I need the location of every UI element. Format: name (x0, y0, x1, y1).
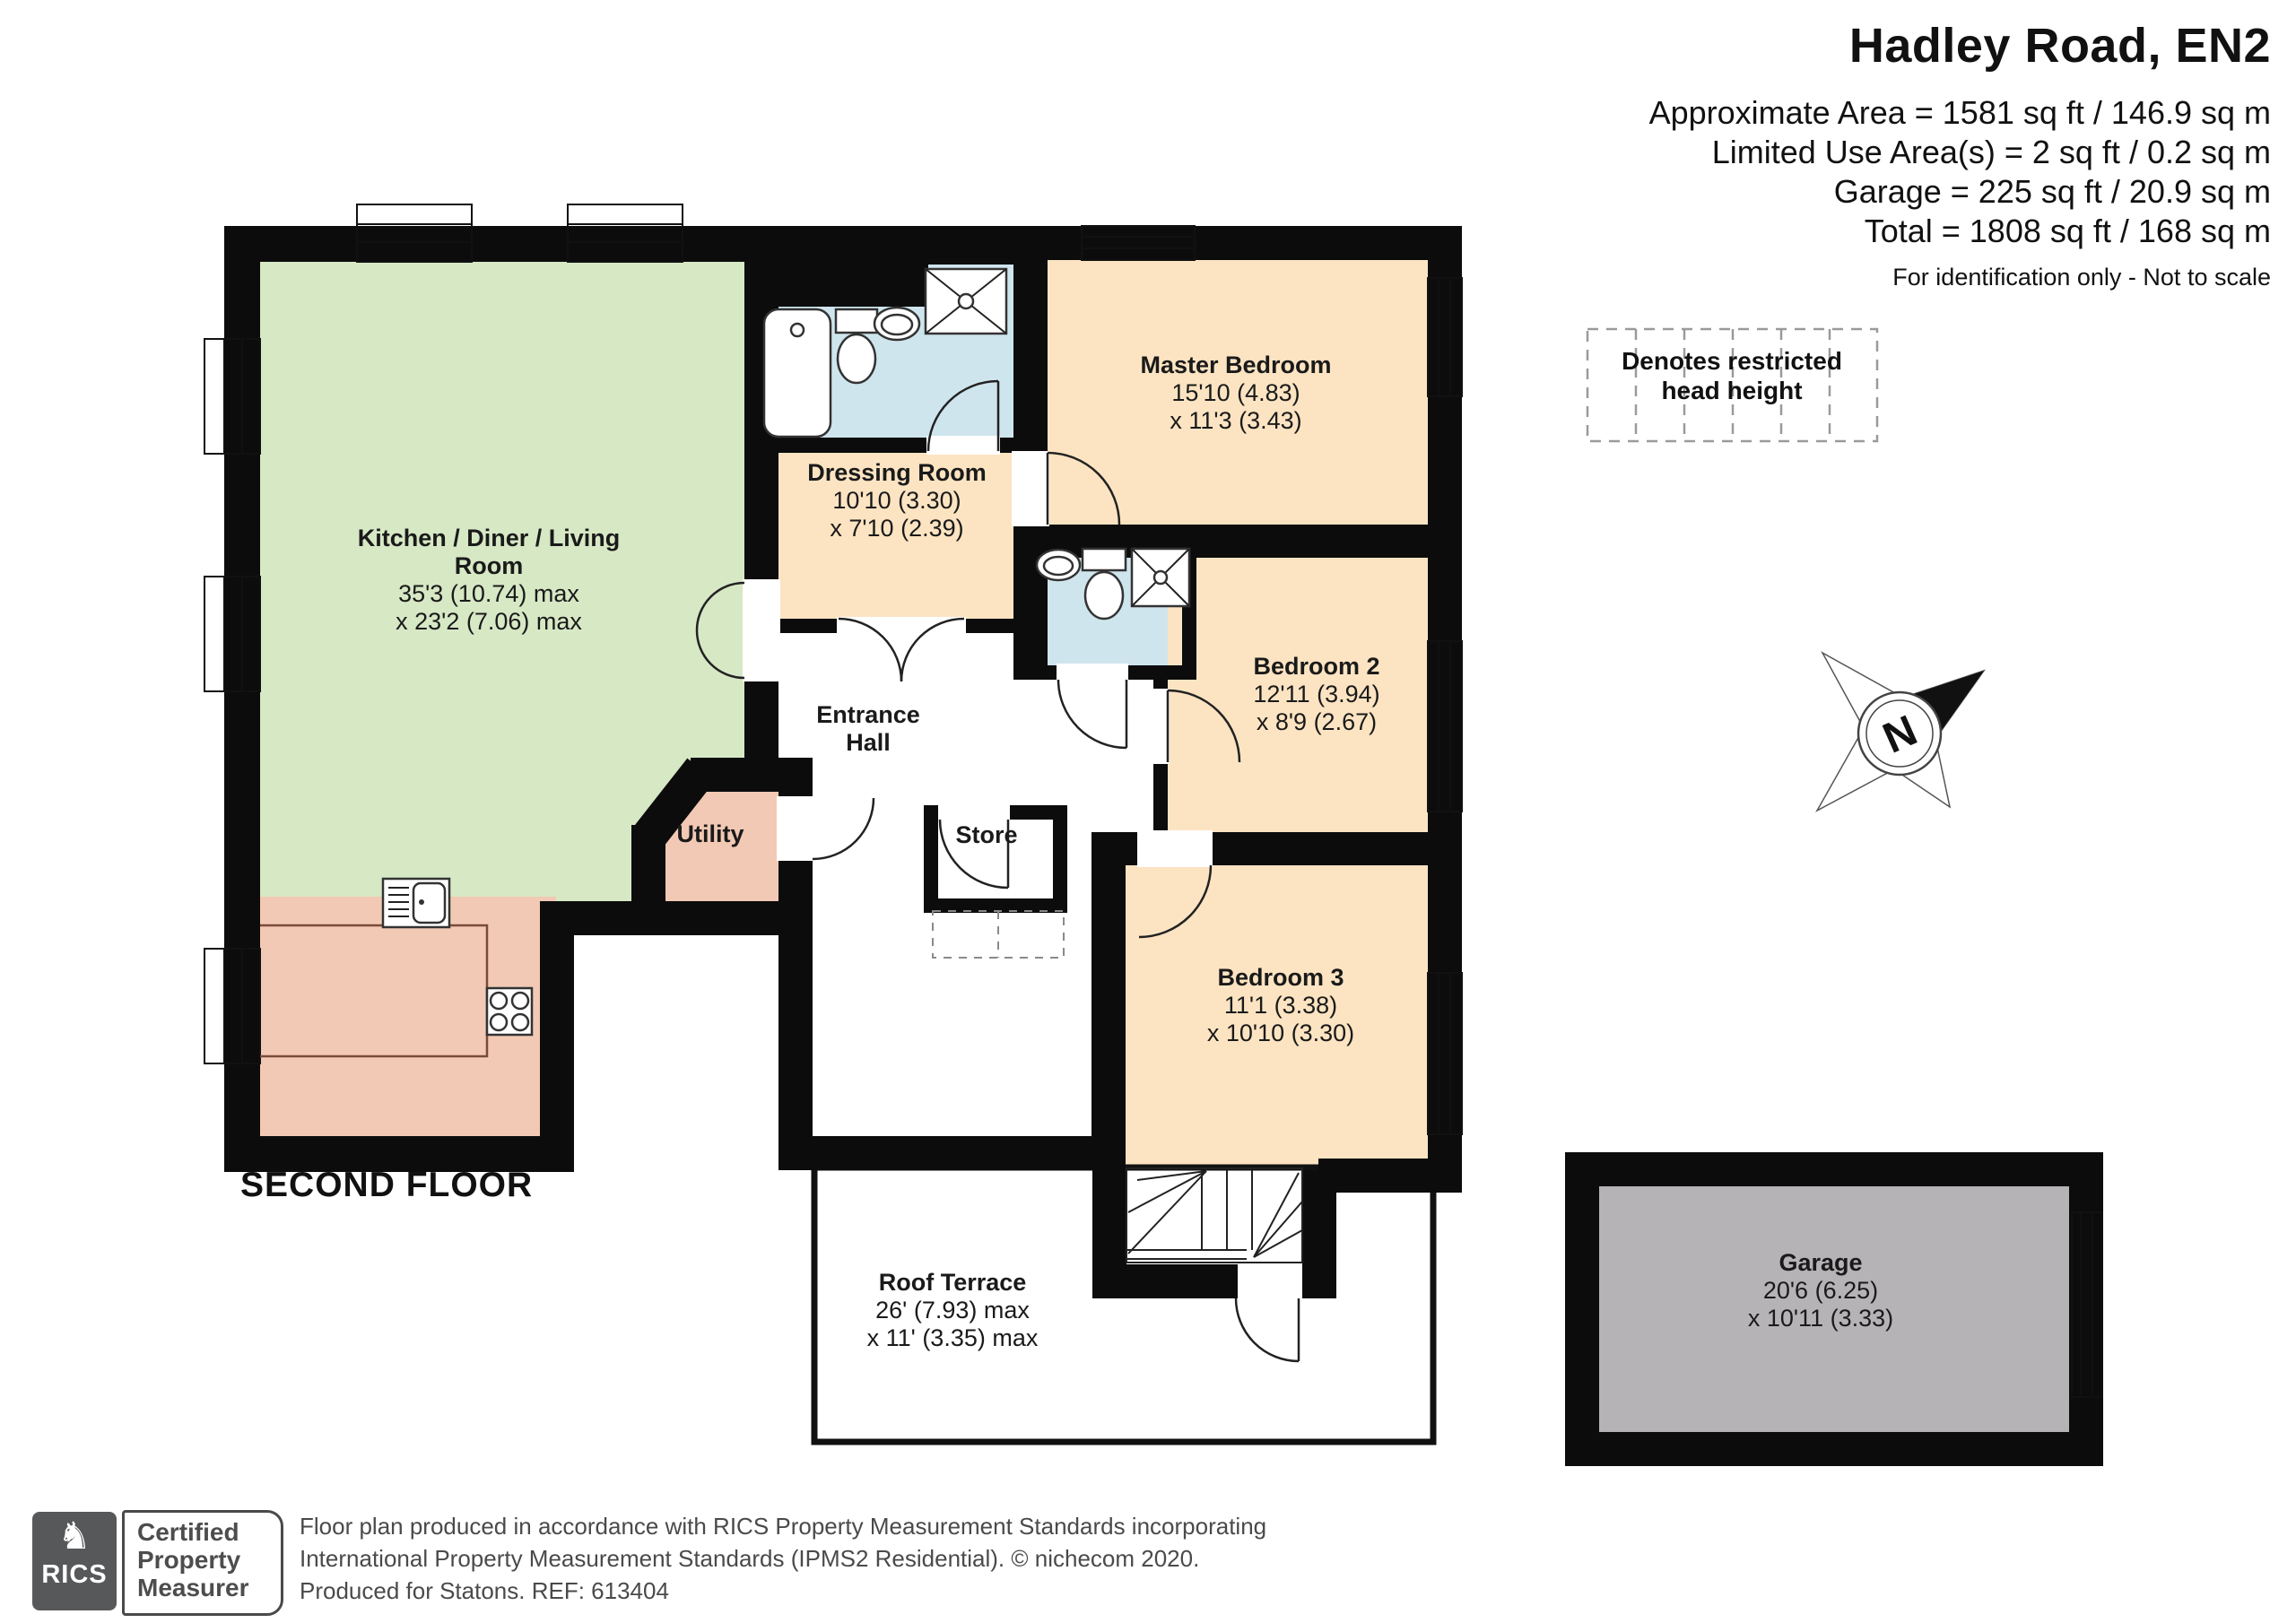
terrace-dim1: 26' (7.93) max (867, 1297, 1039, 1324)
total-area-line: Total = 1808 sq ft / 168 sq m (1649, 212, 2271, 251)
header: Hadley Road, EN2 Approximate Area = 1581… (1649, 18, 2271, 291)
footer-line-1: Floor plan produced in accordance with R… (300, 1510, 1266, 1542)
bedroom3-name: Bedroom 3 (1207, 964, 1354, 992)
bedroom3-label: Bedroom 3 11'1 (3.38) x 10'10 (3.30) (1207, 964, 1354, 1047)
garage-label: Garage 20'6 (6.25) x 10'11 (3.33) (1748, 1249, 1893, 1332)
footer-line-2: International Property Measurement Stand… (300, 1542, 1266, 1575)
hob-icon (487, 988, 532, 1035)
bedroom2-label: Bedroom 2 12'11 (3.94) x 8'9 (2.67) (1253, 653, 1379, 736)
utility-label: Utility (676, 820, 744, 848)
bedroom2-dim1: 12'11 (3.94) (1253, 681, 1379, 708)
kitchen-dim1: 35'3 (10.74) max (354, 580, 623, 608)
ensuite-sink-icon (1037, 550, 1080, 580)
store-name: Store (955, 821, 1017, 849)
master-dim2: x 11'3 (3.43) (1140, 407, 1331, 435)
entrance-name: Entrance Hall (801, 701, 935, 757)
page-title: Hadley Road, EN2 (1649, 18, 2271, 74)
store-label: Store (955, 821, 1017, 849)
footer-line-3: Produced for Statons. REF: 613404 (300, 1575, 1266, 1607)
restricted-area-store (933, 911, 1064, 958)
footer-disclaimer: Floor plan produced in accordance with R… (300, 1510, 1266, 1607)
garage-area-line: Garage = 225 sq ft / 20.9 sq m (1649, 172, 2271, 212)
ensuite-shower-icon (1132, 549, 1189, 606)
kitchen-dim2: x 23'2 (7.06) max (354, 608, 623, 636)
limited-use-line: Limited Use Area(s) = 2 sq ft / 0.2 sq m (1649, 133, 2271, 172)
master-bedroom-label: Master Bedroom 15'10 (4.83) x 11'3 (3.43… (1140, 352, 1331, 435)
floorplan-page: N Hadley Road, EN2 Approximate Area = 15… (0, 0, 2296, 1623)
floor-title: SECOND FLOOR (240, 1166, 533, 1205)
dressing-dim2: x 7'10 (2.39) (807, 515, 987, 542)
scale-note: For identification only - Not to scale (1649, 264, 2271, 291)
approx-area-line: Approximate Area = 1581 sq ft / 146.9 sq… (1649, 93, 2271, 133)
bedroom3-dim2: x 10'10 (3.30) (1207, 1020, 1354, 1047)
roof-terrace-label: Roof Terrace 26' (7.93) max x 11' (3.35)… (867, 1269, 1039, 1352)
dressing-dim1: 10'10 (3.30) (807, 487, 987, 515)
kitchen-name: Kitchen / Diner / Living Room (354, 525, 623, 580)
utility-name: Utility (676, 820, 744, 848)
sink-icon (874, 308, 919, 340)
shower-icon (926, 269, 1006, 334)
bedroom2-dim2: x 8'9 (2.67) (1253, 708, 1379, 736)
terrace-dim2: x 11' (3.35) max (867, 1324, 1039, 1352)
bedroom3-dim1: 11'1 (3.38) (1207, 992, 1354, 1020)
ensuite-toilet-icon (1083, 549, 1126, 619)
kitchen-sink-icon (383, 879, 449, 927)
restricted-height-legend: Denotes restricted head height (1593, 346, 1871, 405)
certified-measurer-badge: Certified Property Measurer (122, 1510, 283, 1616)
master-dim1: 15'10 (4.83) (1140, 379, 1331, 407)
garage-dim1: 20'6 (6.25) (1748, 1277, 1893, 1305)
bedroom2-name: Bedroom 2 (1253, 653, 1379, 681)
dressing-room-label: Dressing Room 10'10 (3.30) x 7'10 (2.39) (807, 459, 987, 542)
garage-name: Garage (1748, 1249, 1893, 1277)
terrace-name: Roof Terrace (867, 1269, 1039, 1297)
toilet-icon (836, 309, 877, 383)
dressing-name: Dressing Room (807, 459, 987, 487)
master-name: Master Bedroom (1140, 352, 1331, 379)
rics-wordmark: RICS (32, 1560, 117, 1590)
rics-logo: ♞ RICS (32, 1512, 117, 1610)
rics-lion-icon: ♞ (32, 1512, 117, 1560)
garage-dim2: x 10'11 (3.33) (1748, 1305, 1893, 1332)
compass-icon: N (1817, 653, 1984, 811)
entrance-hall-label: Entrance Hall (801, 701, 935, 757)
bath-icon (764, 309, 831, 437)
kitchen-label: Kitchen / Diner / Living Room 35'3 (10.7… (354, 525, 623, 636)
